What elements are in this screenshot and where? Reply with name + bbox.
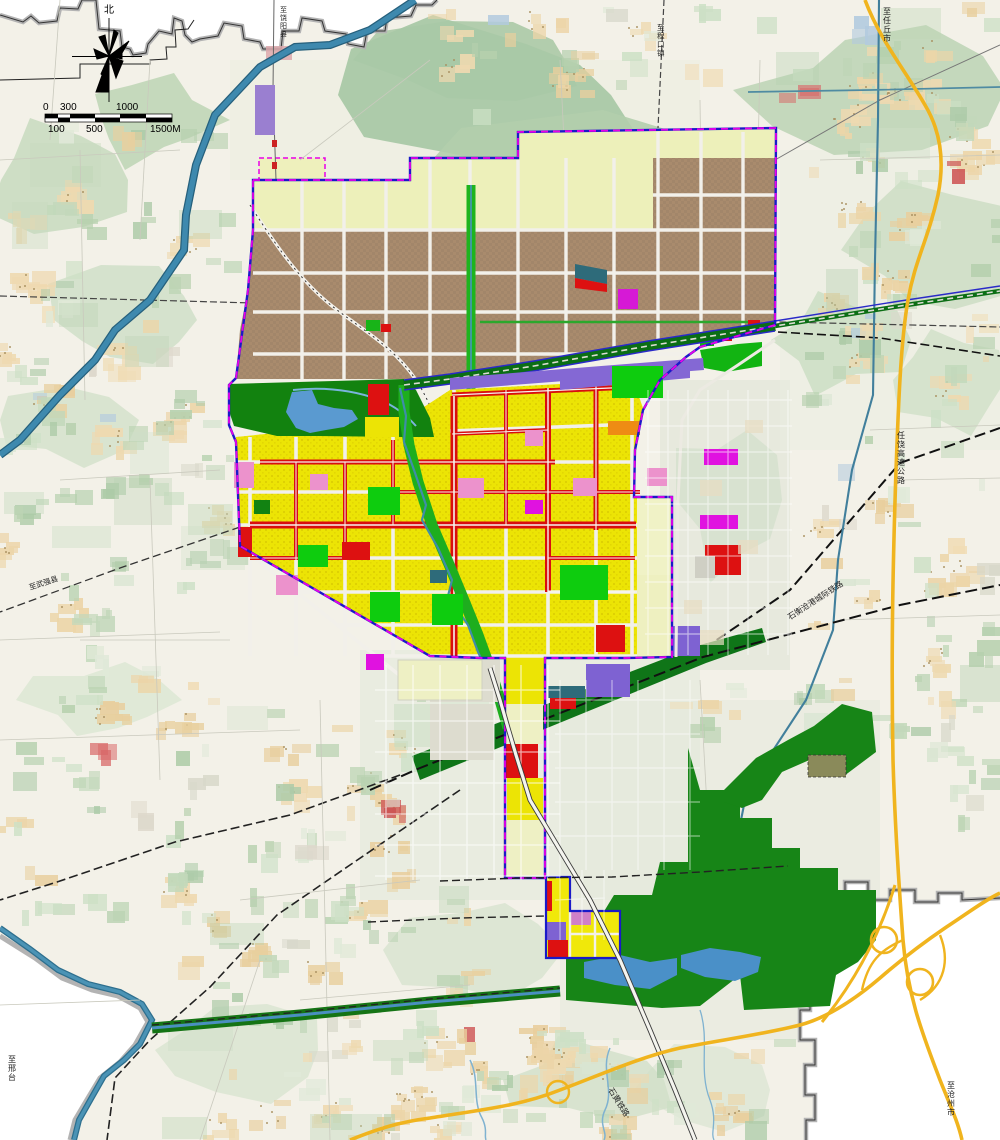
svg-text:0: 0 bbox=[43, 102, 49, 113]
svg-text:100: 100 bbox=[48, 124, 65, 135]
svg-text:任饶高速公路: 任饶高速公路 bbox=[897, 430, 905, 485]
svg-text:至程口镇: 至程口镇 bbox=[657, 23, 665, 58]
svg-text:北: 北 bbox=[104, 4, 114, 16]
svg-text:至邢台: 至邢台 bbox=[8, 1055, 16, 1082]
svg-text:至任丘市: 至任丘市 bbox=[883, 7, 891, 43]
svg-text:300: 300 bbox=[60, 102, 77, 113]
svg-text:500: 500 bbox=[86, 124, 103, 135]
svg-text:1000: 1000 bbox=[116, 102, 139, 113]
svg-text:至沧州市: 至沧州市 bbox=[947, 1081, 955, 1117]
svg-text:1500M: 1500M bbox=[150, 124, 181, 135]
